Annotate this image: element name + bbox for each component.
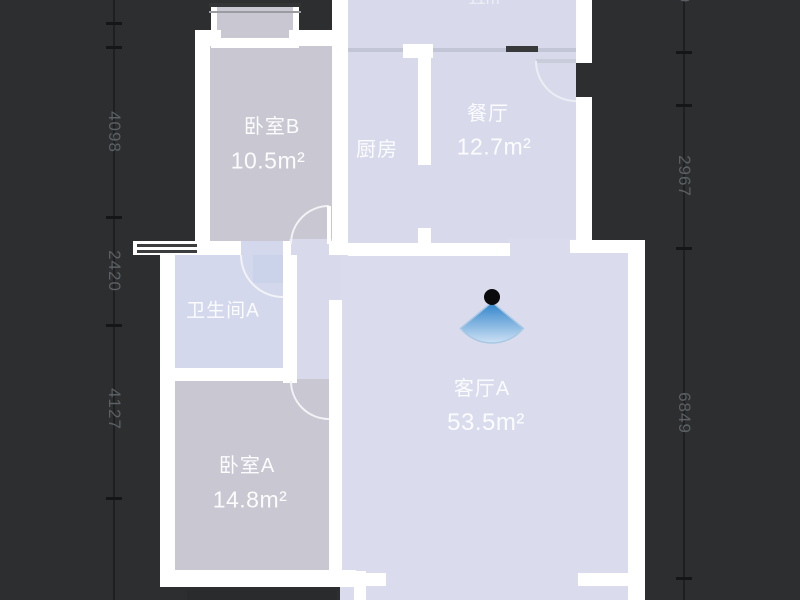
wall [283, 241, 291, 255]
wall [329, 241, 348, 255]
dimension-tick [106, 216, 122, 219]
divider-window-segment [506, 46, 538, 52]
wall [329, 368, 342, 381]
dimension-tick [106, 22, 122, 25]
room-label-living-a: 客厅A [454, 379, 510, 399]
room-label-kitchen: 厨房 [356, 140, 398, 160]
room-label-bedroom-b: 卧室B [244, 117, 300, 137]
bathroom-nook [253, 255, 285, 283]
wall [160, 241, 175, 585]
wall [283, 255, 297, 383]
dimension-value-left-2: 4127 [104, 388, 124, 430]
bay-window-glass [209, 11, 301, 13]
bedroom-a-window-glass [187, 590, 337, 600]
bathroom-window-glass [137, 250, 197, 253]
glass-divider-line [348, 48, 576, 52]
dimension-tick [676, 51, 692, 54]
room-area-living-a: 53.5m² [447, 411, 525, 435]
wall [160, 570, 356, 587]
room-area-bedroom-b: 10.5m² [231, 150, 306, 173]
dimension-tick [106, 497, 122, 500]
wall [418, 52, 431, 165]
dimension-tick [676, 247, 692, 250]
wall [576, 97, 592, 245]
dimension-value-right-2: 6849 [674, 392, 694, 434]
wall [195, 30, 210, 245]
dimension-line-right [683, 0, 685, 600]
dimension-value-left-0: 4098 [104, 111, 124, 153]
wall [332, 0, 348, 246]
dimension-value-right-1: 2967 [674, 155, 694, 197]
wall [578, 573, 630, 586]
camera-dot [484, 289, 500, 305]
room-label-bedroom-a: 卧室A [219, 456, 275, 476]
dimension-value-left-1: 2420 [104, 250, 124, 292]
dimension-tick [106, 324, 122, 327]
room-balcony-top[interactable] [340, 0, 576, 52]
dimension-line-left [113, 0, 115, 600]
dimension-value-right-clipped: 9 [674, 0, 694, 3]
dimension-tick [676, 104, 692, 107]
wall [403, 44, 433, 58]
wall [329, 381, 342, 571]
wall [628, 240, 645, 600]
room-area-dining: 12.7m² [457, 136, 532, 159]
room-label-clipped-top: 11m [468, 0, 500, 9]
bay-window-glass [209, 3, 301, 7]
bathroom-window-glass [137, 244, 197, 247]
floorplan-canvas: 卧室B 10.5m² 厨房 餐厅 12.7m² 卫生间A 卧室A 14.8m² … [0, 0, 800, 600]
dimension-tick [676, 577, 692, 580]
wall [160, 368, 291, 381]
wall [418, 228, 431, 256]
room-label-dining: 餐厅 [467, 104, 509, 124]
room-bedroom-b[interactable] [208, 44, 332, 246]
bay-window-sill [211, 38, 299, 48]
room-label-bathroom-a: 卫生间A [186, 302, 260, 321]
dimension-tick [106, 46, 122, 49]
room-area-bedroom-a: 14.8m² [213, 489, 288, 512]
wall [329, 573, 386, 586]
wall [576, 0, 592, 63]
